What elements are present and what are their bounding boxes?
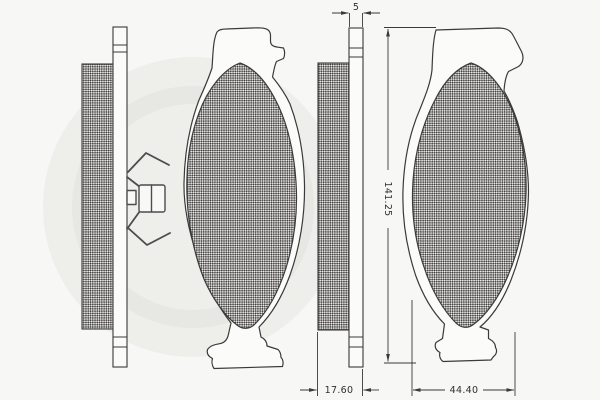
clip-tab — [127, 191, 136, 205]
brake-pad-technical-drawing: 5 141.25 17.60 44.40 — [0, 0, 600, 400]
side-view-right-pad — [318, 28, 363, 367]
dimension-label-pad-height: 141.25 — [382, 181, 393, 216]
dimension-label-pad-width: 44.40 — [450, 385, 479, 396]
right-side-backing-plate — [349, 28, 363, 367]
drawing-canvas: 5 141.25 17.60 44.40 — [0, 0, 600, 400]
right-side-friction-strip — [318, 63, 349, 330]
dimension-label-total-thickness: 17.60 — [325, 385, 354, 396]
left-side-friction-strip — [82, 64, 113, 329]
left-side-backing-plate — [113, 27, 127, 367]
dimension-label-plate-thickness: 5 — [353, 2, 359, 13]
